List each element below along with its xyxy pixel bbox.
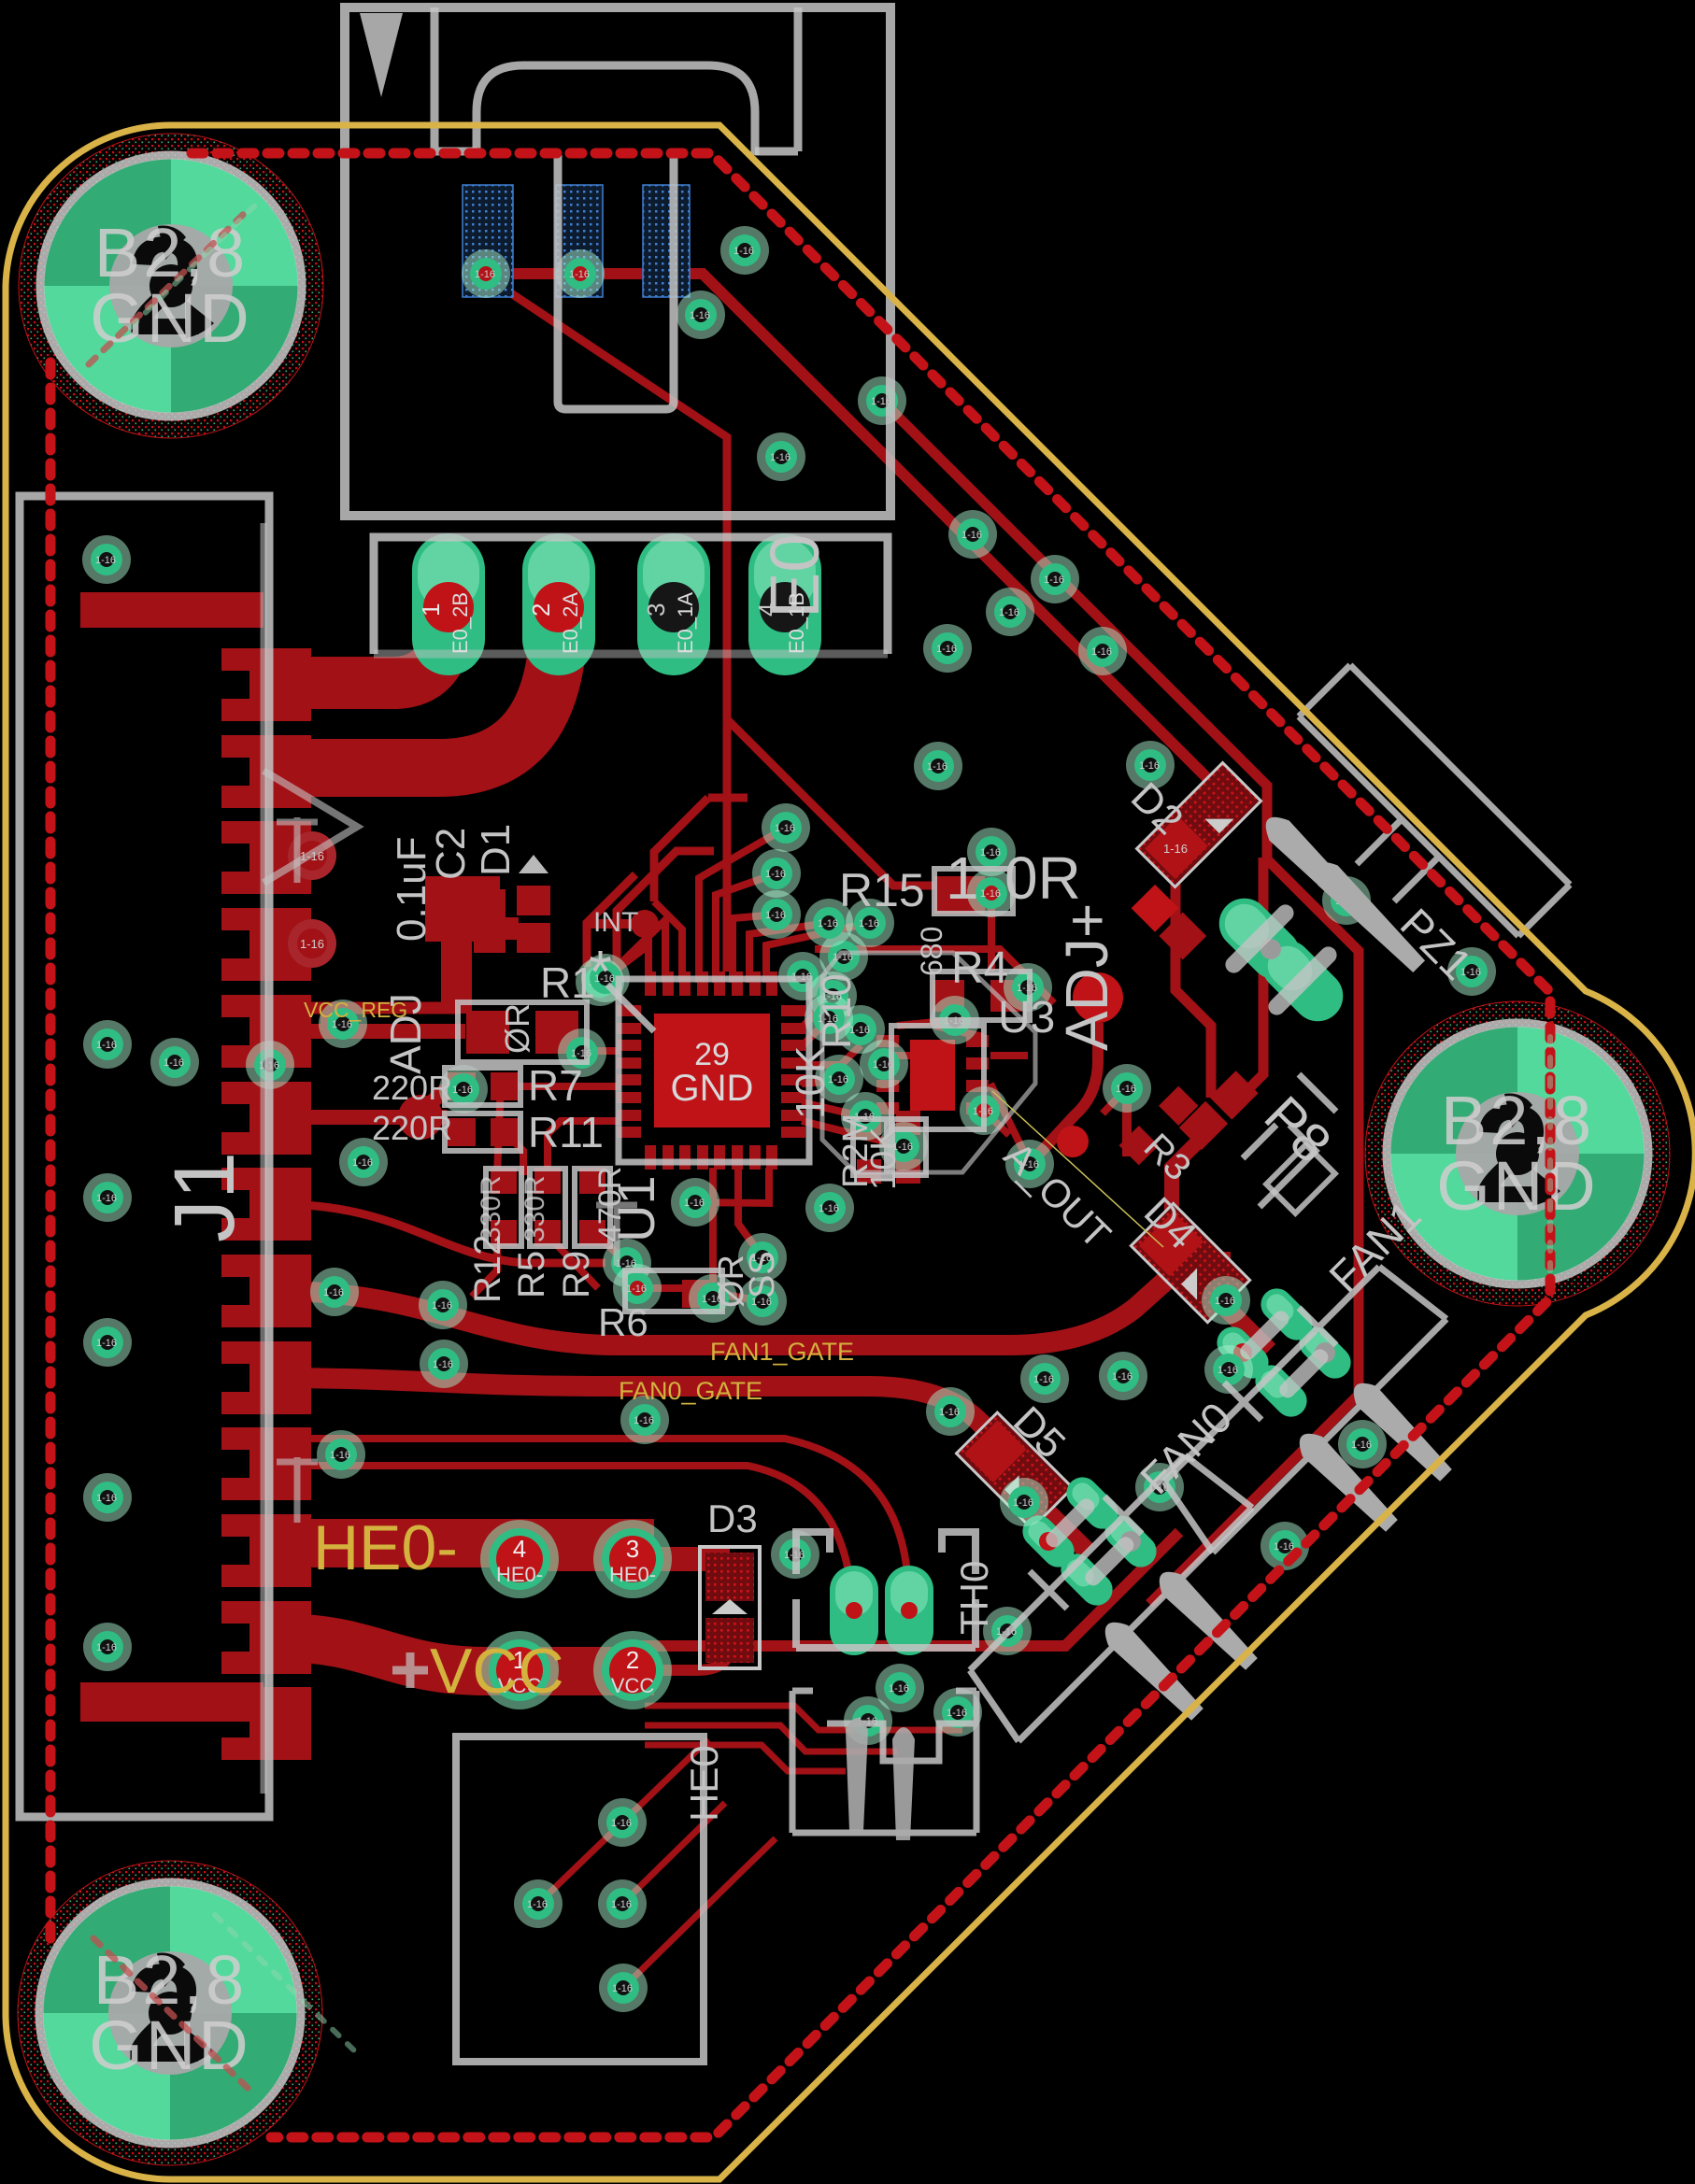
svg-text:1-16: 1-16: [1091, 646, 1112, 658]
svg-text:1-16: 1-16: [961, 530, 982, 541]
svg-text:10K: 10K: [788, 1046, 833, 1119]
svg-text:1-16: 1-16: [164, 1057, 184, 1069]
svg-text:1-16: 1-16: [889, 1683, 909, 1695]
svg-text:220R: 220R: [372, 1109, 452, 1147]
svg-text:1-16: 1-16: [330, 1450, 350, 1461]
svg-text:1-16: 1-16: [634, 1415, 654, 1426]
svg-text:SS: SS: [743, 1251, 782, 1298]
svg-text:R11: R11: [528, 1108, 604, 1156]
svg-text:GND: GND: [89, 2007, 250, 2084]
svg-text:2: 2: [626, 1646, 639, 1674]
svg-text:330R: 330R: [520, 1175, 550, 1242]
svg-text:J1: J1: [157, 1152, 252, 1242]
svg-text:680: 680: [915, 927, 948, 976]
svg-text:0R: 0R: [1004, 844, 1081, 912]
svg-text:4: 4: [753, 603, 781, 617]
svg-text:R5: R5: [511, 1251, 552, 1298]
svg-text:VCC: VCC: [611, 1674, 655, 1697]
svg-text:HE0-: HE0-: [609, 1563, 656, 1586]
svg-text:2: 2: [527, 603, 555, 617]
svg-text:1-16: 1-16: [96, 1193, 117, 1204]
svg-text:E0_2B: E0_2B: [449, 592, 472, 654]
svg-text:ADJ+: ADJ+: [1053, 903, 1120, 1051]
svg-text:C2: C2: [428, 828, 474, 880]
svg-text:R7: R7: [528, 1061, 583, 1110]
svg-text:D3: D3: [707, 1496, 758, 1540]
svg-text:3: 3: [642, 603, 670, 617]
svg-text:1-16: 1-16: [612, 1983, 633, 1994]
svg-text:1-16: 1-16: [1139, 760, 1160, 772]
svg-text:1-16: 1-16: [765, 869, 786, 880]
svg-text:1-16: 1-16: [96, 1040, 117, 1051]
svg-text:INT: INT: [593, 907, 638, 938]
svg-text:1-16: 1-16: [611, 1899, 632, 1910]
svg-text:1-16: 1-16: [859, 918, 879, 929]
svg-text:GND: GND: [90, 279, 251, 357]
svg-text:1-16: 1-16: [352, 1157, 373, 1169]
svg-text:1-16: 1-16: [1351, 1439, 1372, 1451]
svg-text:D1: D1: [473, 824, 519, 876]
svg-text:1-16: 1-16: [433, 1359, 453, 1370]
svg-text:1-16: 1-16: [819, 1203, 839, 1214]
svg-text:1-16: 1-16: [432, 1300, 452, 1312]
svg-text:1-16: 1-16: [936, 644, 957, 655]
svg-text:1-16: 1-16: [452, 1085, 473, 1096]
svg-text:1-16: 1-16: [626, 1283, 647, 1295]
svg-text:FAN1_GATE: FAN1_GATE: [710, 1338, 854, 1366]
svg-text:1-16: 1-16: [939, 1407, 960, 1418]
svg-text:1-16: 1-16: [775, 823, 795, 834]
svg-text:R12: R12: [467, 1235, 508, 1303]
svg-text:1: 1: [946, 844, 979, 912]
svg-text:1-16: 1-16: [1215, 1296, 1235, 1307]
svg-text:1-16: 1-16: [770, 452, 791, 463]
svg-text:330R: 330R: [476, 1175, 506, 1242]
svg-text:HE0-: HE0-: [313, 1512, 458, 1583]
svg-text:1-16: 1-16: [96, 1338, 117, 1349]
svg-text:1-16: 1-16: [927, 761, 947, 773]
svg-text:1-16: 1-16: [818, 918, 838, 929]
svg-text:1-16: 1-16: [1116, 1084, 1136, 1095]
svg-text:1-16: 1-16: [684, 1198, 705, 1209]
svg-text:3: 3: [626, 1535, 639, 1563]
svg-text:1-16: 1-16: [1112, 1371, 1132, 1383]
svg-text:1-16: 1-16: [96, 1493, 117, 1504]
svg-text:4: 4: [513, 1535, 526, 1563]
svg-text:E0_1A: E0_1A: [674, 592, 697, 654]
svg-text:1-16: 1-16: [1044, 574, 1064, 586]
svg-text:FAN0_GATE: FAN0_GATE: [619, 1377, 762, 1405]
svg-text:1-16: 1-16: [947, 1708, 967, 1719]
svg-text:GND: GND: [1436, 1147, 1598, 1225]
svg-text:1-16: 1-16: [980, 888, 1001, 900]
svg-text:1-16: 1-16: [980, 847, 1001, 858]
svg-text:1: 1: [417, 603, 445, 617]
svg-text:HE0-: HE0-: [496, 1563, 543, 1586]
svg-text:R6: R6: [598, 1300, 648, 1344]
svg-text:220R: 220R: [372, 1069, 452, 1107]
svg-text:1-16: 1-16: [690, 310, 710, 321]
svg-text:1-16: 1-16: [1274, 1541, 1294, 1553]
svg-text:1-16: 1-16: [475, 269, 495, 280]
svg-text:E0_2A: E0_2A: [559, 592, 582, 654]
svg-text:ADJ: ADJ: [381, 993, 430, 1074]
svg-text:R4: R4: [951, 943, 1008, 993]
svg-text:1-16: 1-16: [1033, 1374, 1054, 1385]
svg-text:1-16: 1-16: [765, 910, 786, 921]
svg-text:1-16: 1-16: [1218, 1365, 1238, 1376]
svg-text:U1: U1: [606, 1175, 665, 1242]
svg-text:1-16: 1-16: [300, 937, 324, 951]
svg-text:1-16: 1-16: [1163, 842, 1188, 856]
svg-text:1-16: 1-16: [734, 246, 754, 257]
svg-text:R1: R1: [540, 958, 595, 1007]
svg-text:R15: R15: [839, 864, 925, 916]
svg-text:10K: 10K: [864, 1127, 904, 1190]
svg-text:TH0: TH0: [952, 1561, 996, 1635]
svg-text:1-16: 1-16: [95, 555, 116, 566]
svg-text:R10: R10: [814, 973, 860, 1049]
svg-text:1-16: 1-16: [569, 269, 590, 280]
svg-text:U3: U3: [998, 993, 1055, 1042]
svg-text:R9: R9: [556, 1251, 597, 1298]
svg-text:ØR: ØR: [498, 1003, 536, 1054]
svg-text:E0_1B: E0_1B: [785, 592, 808, 654]
svg-text:HE0: HE0: [682, 1745, 726, 1822]
svg-text:1-16: 1-16: [999, 607, 1019, 618]
svg-text:GND: GND: [671, 1068, 754, 1109]
svg-text:1-16: 1-16: [1013, 1497, 1033, 1509]
svg-text:1-16: 1-16: [527, 1899, 548, 1910]
svg-text:VCC: VCC: [430, 1636, 564, 1707]
svg-text:1-16: 1-16: [323, 1287, 344, 1298]
svg-text:1-16: 1-16: [96, 1642, 117, 1653]
svg-text:1-16: 1-16: [611, 1818, 632, 1829]
